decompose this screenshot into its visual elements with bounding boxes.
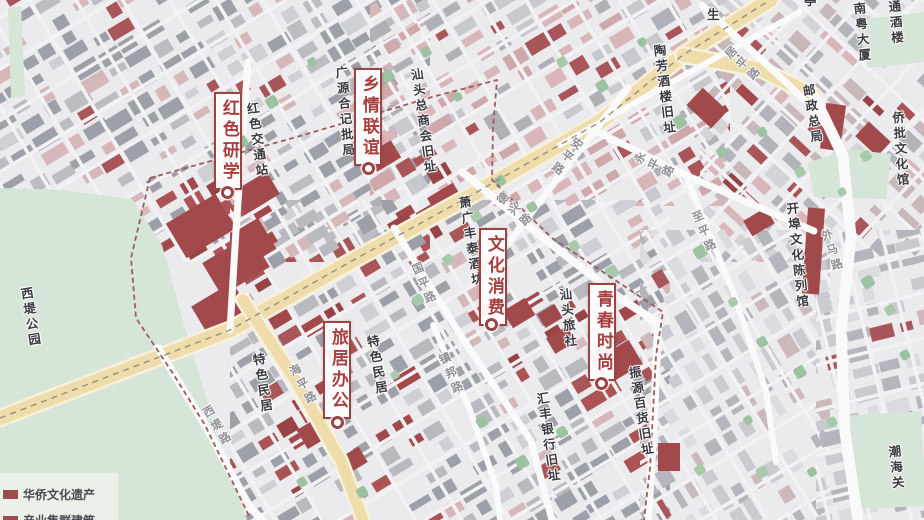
zone-marker-qingchun-shishang	[595, 377, 608, 390]
legend-swatch-industry-icon	[3, 516, 18, 520]
street-label-5: 西堤路	[200, 403, 235, 449]
legend-swatch-heritage-icon	[3, 490, 18, 499]
landmark-label-13: 特色民居	[250, 352, 273, 415]
landmark-label-0: 红色交通站	[244, 101, 268, 180]
zone-marker-wenhua-xiaofei	[485, 318, 498, 331]
legend-label-heritage: 华侨文化遗产	[23, 486, 95, 503]
landmark-label-8: 邮政总局	[800, 83, 823, 146]
landmark-label-2: 汕头总商会旧址	[408, 67, 437, 176]
legend-label-industry: 产业集群建筑	[23, 512, 95, 520]
landmark-label-9: 南粤大厦	[851, 1, 871, 64]
zone-marker-hongse-yanxue	[221, 186, 234, 199]
map-canvas: 红色交通站广源合记批局汕头总商会旧址萧广丰泰酒坊汕头旅社振源百货旧址汇丰银行旧址…	[0, 0, 924, 520]
street-label-3: 外马路	[819, 227, 845, 275]
landmark-label-10: 通酒楼	[886, 0, 904, 47]
street-label-2: 至平路	[689, 208, 719, 256]
zone-marker-lvju-bangong	[331, 416, 344, 429]
landmark-label-16: 潮海关	[886, 444, 905, 492]
landmark-label-12: 开埠文化陈列馆	[784, 201, 809, 310]
street-label-0: 居平路	[722, 44, 765, 85]
landmark-label-14: 特色民居	[364, 334, 388, 397]
legend-row-heritage: 华侨文化遗产	[0, 486, 118, 503]
street-label-8: 国平路	[409, 260, 439, 308]
street-label-4: 德兴路	[494, 190, 537, 231]
street-label-1: 永平路	[632, 149, 679, 180]
map-legend: 华侨文化遗产 产业集群建筑	[0, 473, 118, 520]
landmark-label-6: 汇丰银行旧址	[534, 391, 561, 485]
zone-label-xiangqing-lianyi: 乡情联谊	[354, 68, 382, 166]
landmark-label-7: 陶芳酒楼旧址	[651, 43, 676, 137]
landmark-label-4: 汕头旅社	[557, 287, 577, 350]
zone-label-hongse-yanxue: 红色研学	[214, 92, 242, 190]
zone-label-lvju-bangong: 旅居办公	[323, 321, 351, 419]
zone-label-wenhua-xiaofei: 文化消费	[479, 228, 507, 326]
landmark-label-18: 亭	[802, 0, 816, 10]
legend-row-industry: 产业集群建筑	[0, 512, 118, 520]
landmark-label-5: 振源百货旧址	[626, 365, 654, 459]
map-labels-layer: 红色交通站广源合记批局汕头总商会旧址萧广丰泰酒坊汕头旅社振源百货旧址汇丰银行旧址…	[0, 0, 924, 520]
landmark-label-1: 广源合记批局	[333, 65, 355, 159]
landmark-label-15: 西堤公园	[18, 286, 41, 349]
landmark-label-17: 生	[705, 8, 719, 24]
landmark-label-11: 侨批文化馆	[890, 111, 909, 189]
zone-label-qingchun-shishang: 青春时尚	[588, 283, 616, 381]
street-label-7: 镇邦路	[436, 350, 466, 398]
street-label-9: 安平路	[547, 135, 585, 180]
street-label-6: 海平路	[287, 362, 321, 409]
zone-marker-xiangqing-lianyi	[362, 162, 375, 175]
